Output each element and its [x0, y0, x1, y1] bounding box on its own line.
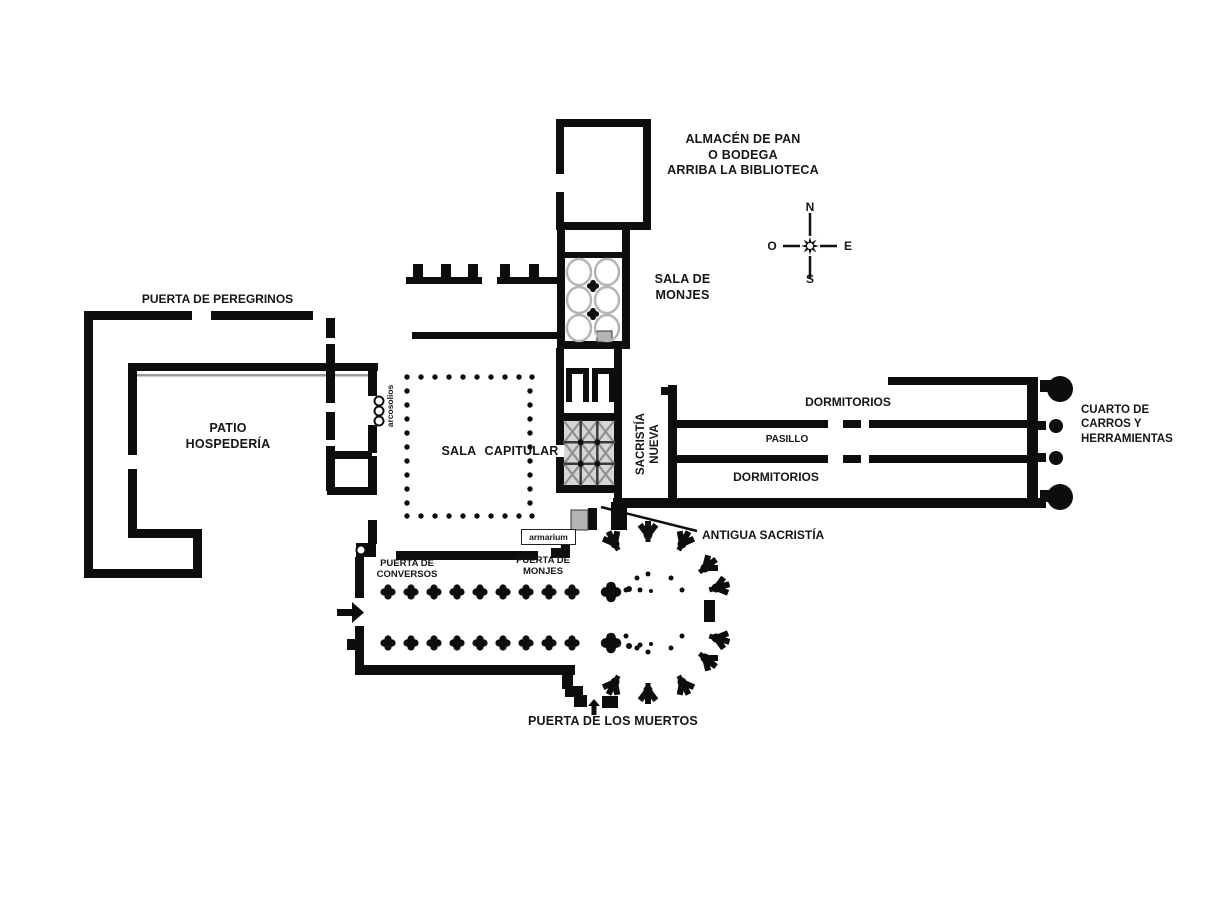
compass-east-label: E [840, 239, 856, 253]
puerta-monjes-label: PUERTA DE MONJES [507, 556, 579, 578]
floor-plan-drawing [0, 0, 1209, 907]
sacristia-nueva-label: SACRISTÍA NUEVA [634, 399, 664, 489]
puerta-muertos-label: PUERTA DE LOS MUERTOS [523, 714, 703, 730]
conversos-pier [357, 546, 366, 555]
compass-south-label: S [802, 272, 818, 286]
antigua-sacristia-label: ANTIGUA SACRISTÍA [702, 528, 824, 543]
compass-north-label: N [802, 200, 818, 214]
dormitorios-norte-label: DORMITORIOS [793, 395, 903, 410]
arcosolios-niches [375, 397, 384, 426]
puerta-peregrinos-label: PUERTA DE PEREGRINOS [125, 292, 310, 307]
nave-piers [380, 582, 653, 654]
sala-monjes-label: SALA DE MONJES [640, 272, 725, 303]
puerta-conversos-label: PUERTA DE CONVERSOS [369, 559, 445, 581]
west-entrance-arrow-icon [337, 602, 364, 623]
compass-west-label: O [764, 239, 780, 253]
compass-rose-icon [783, 213, 837, 279]
pasillo-label: PASILLO [757, 434, 817, 447]
walls [84, 119, 1073, 708]
dormitorios-sur-label: DORMITORIOS [721, 470, 831, 485]
monastery-floor-plan: ALMACÉN DE PAN O BODEGA ARRIBA LA BIBLIO… [0, 0, 1209, 907]
arcosolios-label: arcosolios [385, 377, 397, 435]
cuarto-carros-label: CUARTO DE CARROS Y HERRAMIENTAS [1081, 403, 1206, 446]
armarium-label: armarium [521, 529, 576, 545]
sala-capitular-label: SALA CAPITULAR [420, 444, 580, 460]
patio-hospederia-label: PATIO HOSPEDERÍA [153, 421, 303, 452]
armarium-niche [571, 510, 588, 530]
almacen-label: ALMACÉN DE PAN O BODEGA ARRIBA LA BIBLIO… [648, 132, 838, 179]
muertos-door-arrow-icon [588, 699, 600, 715]
monks-hall-vaults [567, 259, 619, 341]
